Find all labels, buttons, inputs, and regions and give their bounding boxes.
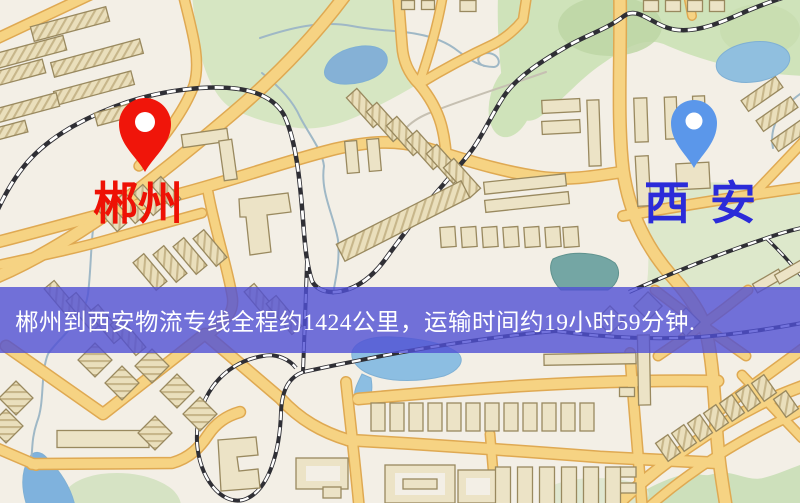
- map-canvas: 郴州 西安: [0, 0, 800, 503]
- destination-label: 西安: [644, 178, 776, 229]
- map-view[interactable]: 郴州 西安 郴州到西安物流专线全程约1424公里，运输时间约19小时59分钟.: [0, 0, 800, 503]
- origin-label: 郴州: [93, 179, 183, 229]
- route-info-banner: 郴州到西安物流专线全程约1424公里，运输时间约19小时59分钟.: [0, 287, 800, 353]
- route-info-text: 郴州到西安物流专线全程约1424公里，运输时间约19小时59分钟.: [0, 303, 695, 337]
